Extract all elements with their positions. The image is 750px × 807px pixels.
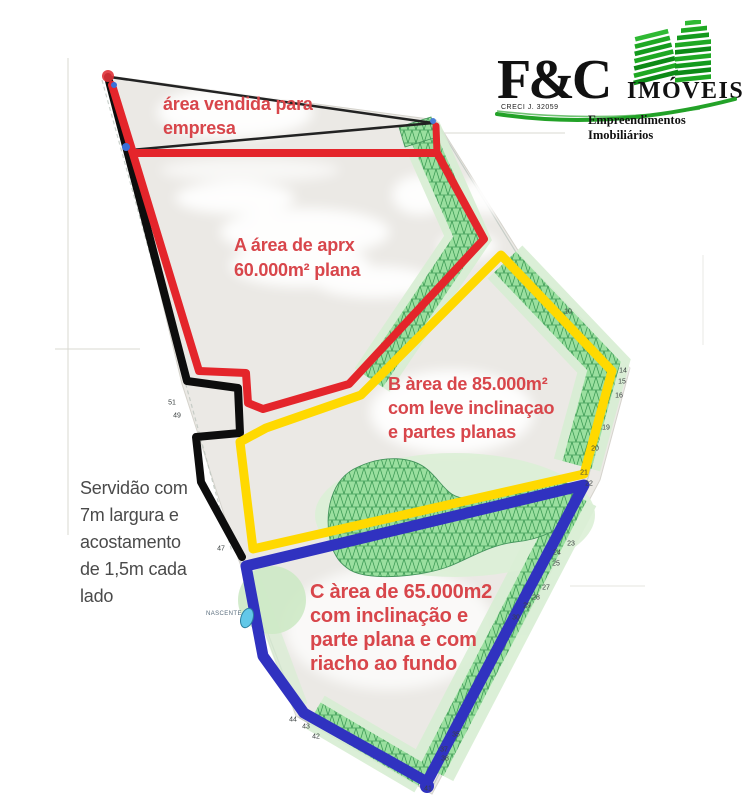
plot-number: 16	[615, 393, 623, 400]
plot-number: 43	[302, 724, 310, 731]
plot-number: 20	[591, 446, 599, 453]
servidao-line1: Servidão com	[80, 475, 188, 502]
servidao-line2: 7m largura e	[80, 502, 188, 529]
scanned-site-plan-page: 1014151619202122232425272829303537384142…	[0, 0, 750, 807]
plot-number: 41	[424, 786, 432, 793]
plot-number: 23	[567, 541, 575, 548]
plot-number: 29	[523, 603, 531, 610]
plot-number: 38	[441, 756, 449, 763]
plot-number: 42	[312, 734, 320, 741]
sold-area-line2: empresa	[163, 116, 313, 140]
sold-area-line1: área vendida para	[163, 92, 313, 116]
area-a-line1: A área de aprx	[234, 233, 360, 258]
area-c-line4: riacho ao fundo	[310, 652, 492, 676]
plot-number: 37	[440, 747, 448, 754]
brand-tagline: Empreendimentos Imobiliários	[588, 113, 745, 143]
plot-number: 28	[532, 595, 540, 602]
servidao-line3: acostamento	[80, 529, 188, 556]
plot-number: 35	[452, 732, 460, 739]
plot-number: 25	[552, 561, 560, 568]
plot-number: 14	[619, 368, 627, 375]
plot-number: 44	[289, 717, 297, 724]
plot-number: 30	[512, 615, 520, 622]
servidao-label: Servidão com 7m largura e acostamento de…	[78, 473, 194, 614]
plot-number: 51	[168, 400, 176, 407]
area-c-label: C àrea de 65.000m2 com inclinação e part…	[310, 580, 492, 676]
area-c-line3: parte plana e com	[310, 628, 492, 652]
brand-logo: F&C IMÓVEIS	[455, 18, 745, 133]
plot-number: 27	[542, 585, 550, 592]
servidao-line5: lado	[80, 583, 188, 610]
plot-number: 24	[553, 550, 561, 557]
plot-number: 47	[217, 546, 225, 553]
plot-number: 21	[580, 470, 588, 477]
area-c-line1: C àrea de 65.000m2	[310, 580, 492, 604]
plot-number: 22	[585, 481, 593, 488]
servidao-line4: de 1,5m cada	[80, 556, 188, 583]
area-c-line2: com inclinação e	[310, 604, 492, 628]
area-b-line3: e partes planas	[388, 420, 554, 444]
area-b-line1: B àrea de 85.000m²	[388, 372, 554, 396]
area-b-line2: com leve inclinaçao	[388, 396, 554, 420]
nascente-label: NASCENTE	[206, 603, 242, 626]
sold-area-label: área vendida para empresa	[163, 92, 313, 140]
area-a-line2: 60.000m² plana	[234, 258, 360, 283]
plot-number: 49	[173, 413, 181, 420]
plot-number: 15	[618, 379, 626, 386]
area-a-label: A área de aprx 60.000m² plana	[234, 233, 360, 283]
plot-number: 10	[564, 309, 572, 316]
plot-number: 19	[602, 425, 610, 432]
area-b-label: B àrea de 85.000m² com leve inclinaçao e…	[388, 372, 554, 444]
